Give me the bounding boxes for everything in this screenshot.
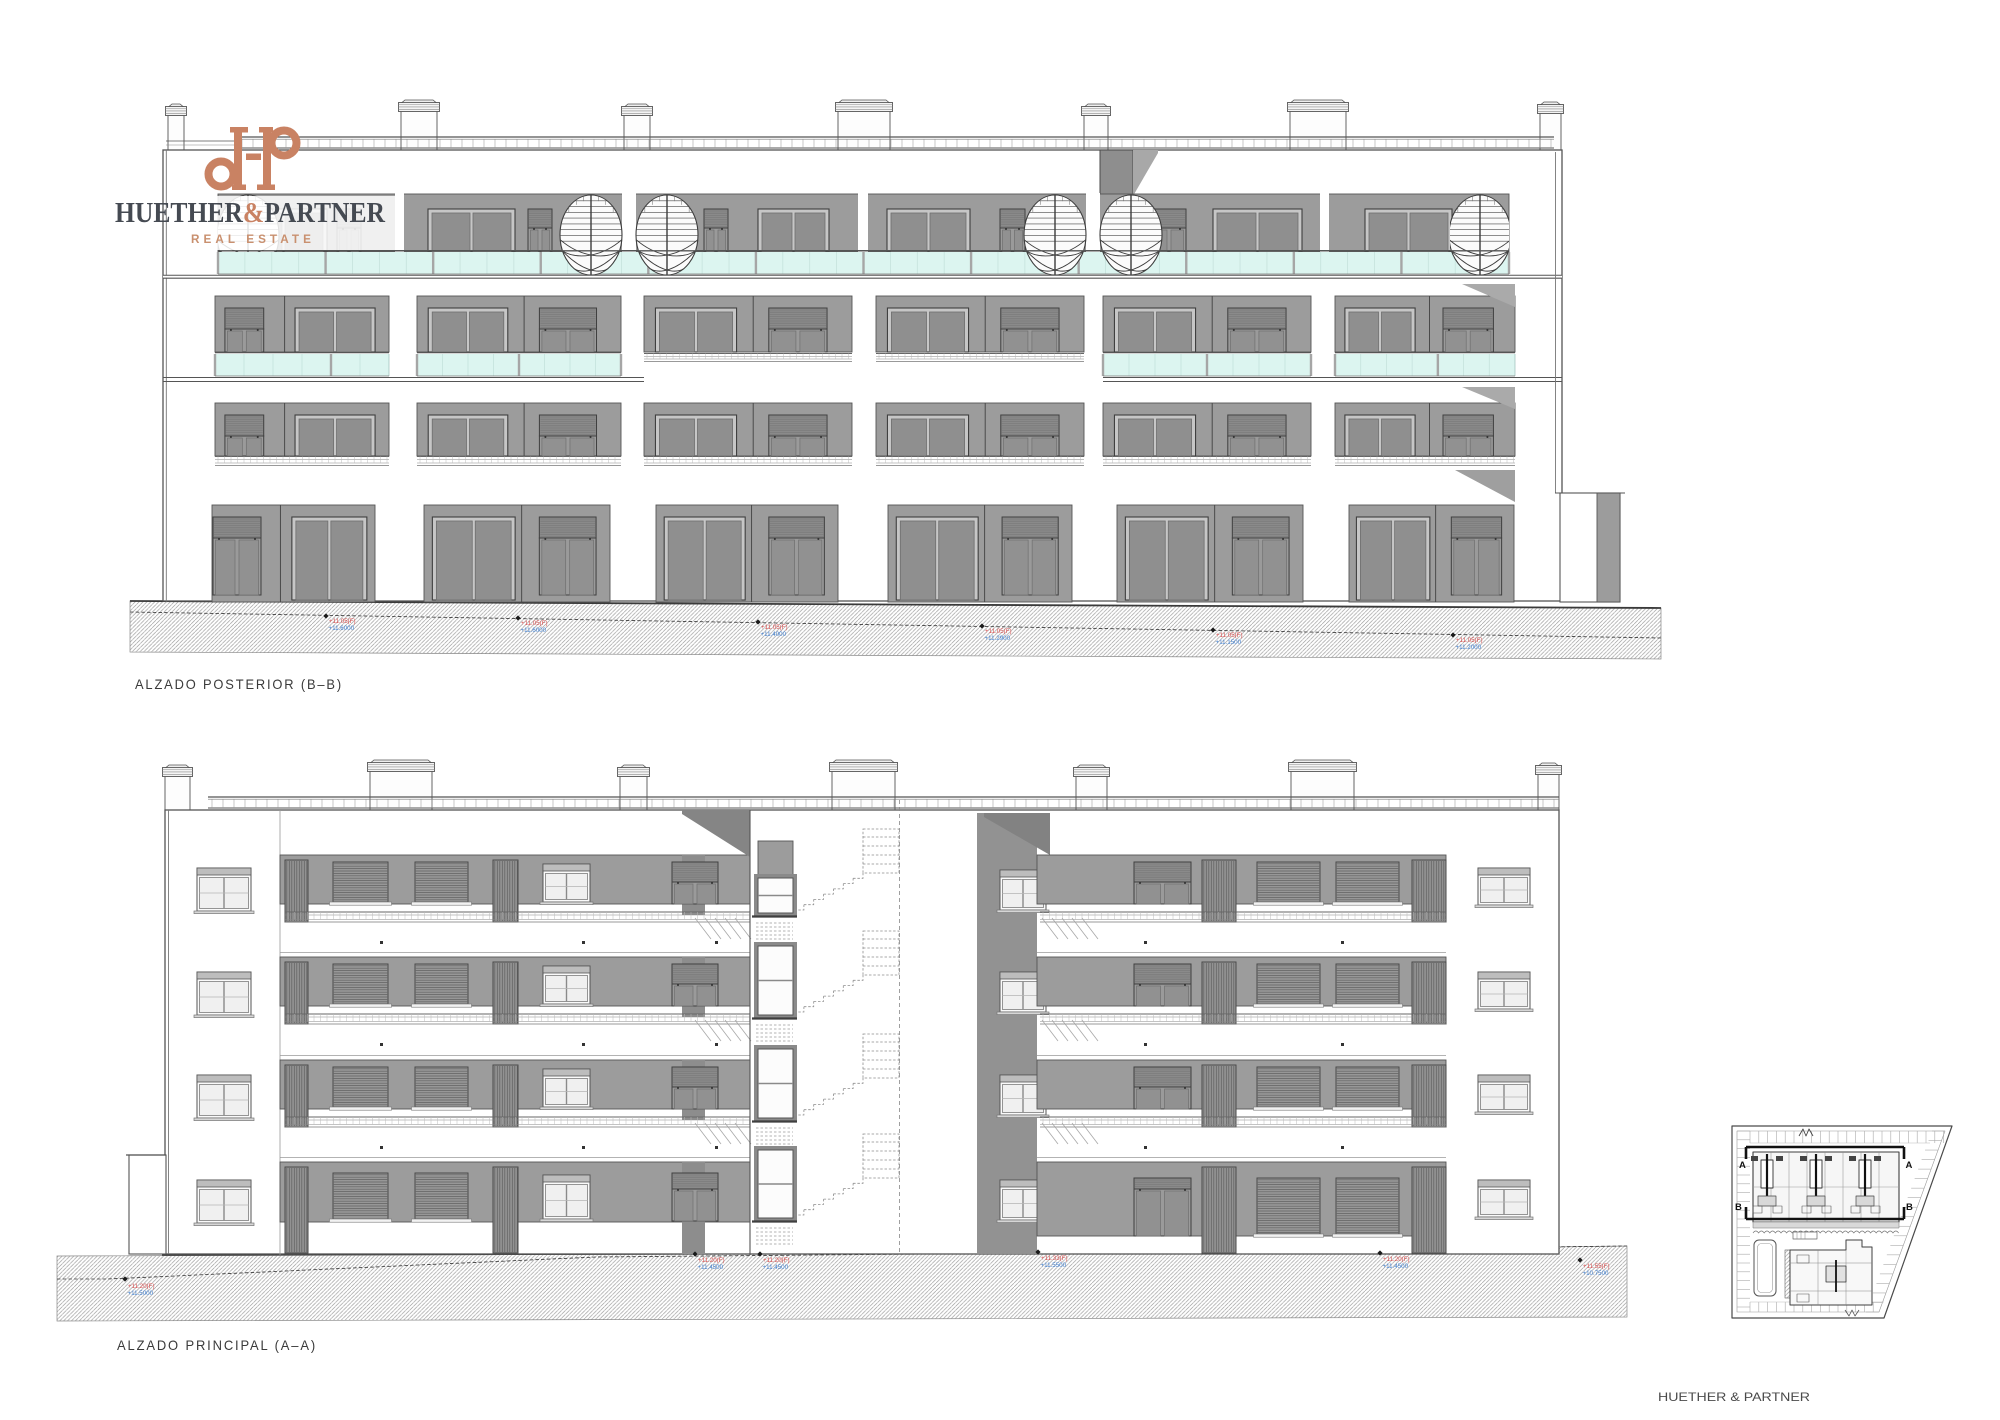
svg-text:+11.20(F): +11.20(F) (128, 1283, 155, 1290)
svg-text:+11.1500: +11.1500 (1216, 639, 1242, 646)
svg-text:A: A (1906, 1160, 1913, 1171)
svg-text:ALZADO POSTERIOR (B–B): ALZADO POSTERIOR (B–B) (135, 676, 343, 692)
svg-text:+11.5000: +11.5000 (128, 1290, 154, 1297)
svg-text:+11.55(F): +11.55(F) (1583, 1263, 1610, 1270)
svg-text:+11.4000: +11.4000 (761, 631, 787, 638)
svg-text:+10.7500: +10.7500 (1583, 1270, 1610, 1277)
svg-text:B: B (1906, 1202, 1913, 1213)
svg-text:+11.20(F): +11.20(F) (698, 1257, 725, 1264)
svg-text:HUETHER&PARTNER: HUETHER&PARTNER (115, 197, 386, 229)
svg-text:+11.33(F): +11.33(F) (1041, 1255, 1068, 1262)
svg-text:+11.05(F): +11.05(F) (521, 620, 548, 627)
svg-text:+11.20(F): +11.20(F) (1383, 1256, 1410, 1263)
svg-text:+11.4500: +11.4500 (763, 1264, 789, 1271)
svg-text:REAL ESTATE: REAL ESTATE (191, 234, 315, 246)
svg-text:+11.6000: +11.6000 (521, 627, 547, 634)
svg-text:+11.4500: +11.4500 (698, 1264, 724, 1271)
svg-text:+11.5500: +11.5500 (1041, 1262, 1067, 1269)
svg-text:HUETHER & PARTNER: HUETHER & PARTNER (1658, 1390, 1810, 1404)
svg-text:+11.4500: +11.4500 (1383, 1263, 1409, 1270)
svg-text:+11.05(F): +11.05(F) (329, 618, 356, 625)
svg-text:+11.6000: +11.6000 (329, 625, 355, 632)
svg-text:+11.2000: +11.2000 (1456, 644, 1482, 651)
svg-text:+11.05(F): +11.05(F) (1216, 632, 1243, 639)
svg-text:+11.05(F): +11.05(F) (761, 624, 788, 631)
svg-text:+11.2900: +11.2900 (985, 635, 1011, 642)
svg-text:B: B (1735, 1202, 1742, 1213)
svg-text:+11.05(F): +11.05(F) (985, 628, 1012, 635)
svg-text:A: A (1739, 1160, 1746, 1171)
svg-text:ALZADO PRINCIPAL (A–A): ALZADO PRINCIPAL (A–A) (117, 1337, 317, 1353)
svg-text:+11.20(F): +11.20(F) (763, 1257, 790, 1264)
svg-text:+11.05(F): +11.05(F) (1456, 637, 1483, 644)
